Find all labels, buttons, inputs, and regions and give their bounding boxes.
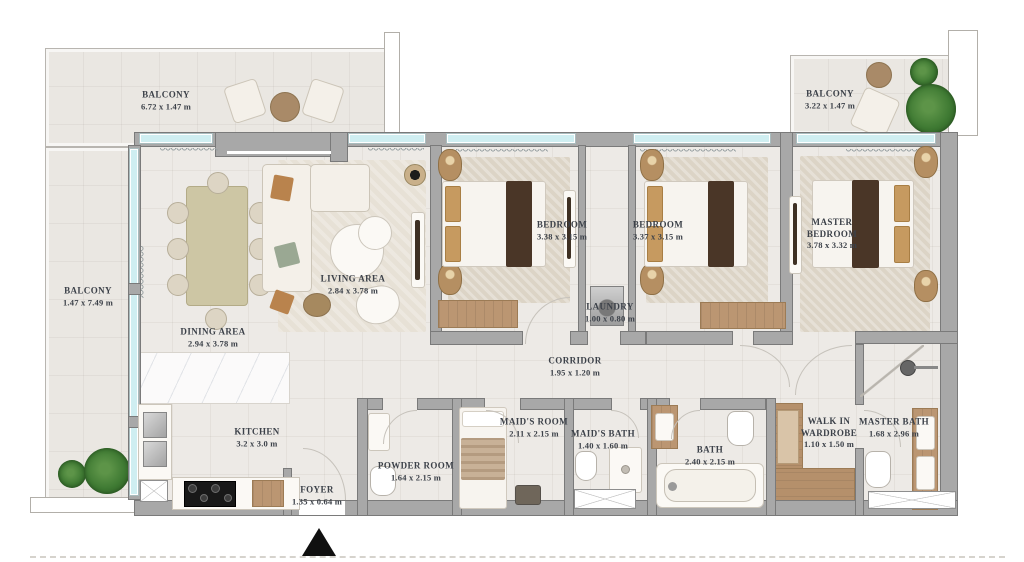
room-label-powder-room: POWDER ROOM 1.64 x 2.15 m <box>378 461 454 484</box>
wall <box>430 331 523 345</box>
wall-pier <box>620 331 646 345</box>
room-label-kitchen: KITCHEN 3.2 x 3.0 m <box>234 427 279 450</box>
curtain <box>452 149 548 155</box>
potted-plant <box>58 460 86 488</box>
bed-pillow <box>445 186 461 222</box>
room-name: MAID'S ROOM <box>500 417 568 427</box>
wall <box>766 398 776 516</box>
shower-arm <box>914 366 938 369</box>
room-label-foyer: FOYER 1.35 x 0.64 m <box>292 485 342 508</box>
dresser <box>438 300 518 328</box>
room-label-master-bath: MASTER BATH 1.68 x 2.96 m <box>859 417 929 440</box>
wall <box>753 331 793 345</box>
room-label-laundry: LAUNDRY 1.00 x 0.80 m <box>585 302 635 325</box>
wall <box>940 132 958 516</box>
room-label-bath: BATH 2.40 x 2.15 m <box>685 445 735 468</box>
nightstand <box>438 263 462 295</box>
room-name: BALCONY <box>64 286 112 296</box>
property-boundary-line <box>30 556 1005 558</box>
cooktop-burner <box>224 494 232 502</box>
wall-mullion <box>128 283 141 295</box>
stool <box>515 485 541 505</box>
room-name: POWDER ROOM <box>378 461 454 471</box>
curtain <box>141 246 147 298</box>
room-dims: 2.40 x 2.15 m <box>685 456 735 467</box>
room-dims: 1.47 x 7.49 m <box>63 297 113 308</box>
floor-plan: BALCONY 6.72 x 1.47 m BALCONY 1.47 x 7.4… <box>0 0 1024 562</box>
room-dims: 1.64 x 2.15 m <box>378 472 454 483</box>
sofa-cushion <box>270 174 294 201</box>
room-name: MASTER BEDROOM <box>807 217 857 239</box>
balcony-round-table <box>866 62 892 88</box>
room-name: FOYER <box>300 485 334 495</box>
dining-chair <box>167 238 189 260</box>
nightstand <box>640 263 664 295</box>
window <box>447 134 575 143</box>
kitchen-sink <box>143 412 167 438</box>
window <box>140 134 212 143</box>
room-name: LAUNDRY <box>586 302 633 312</box>
room-name: BALCONY <box>806 89 854 99</box>
floor-lamp <box>404 164 426 186</box>
window-balcony-door <box>797 134 935 143</box>
shower-drain <box>621 465 630 474</box>
potted-plant <box>910 58 938 86</box>
wall-pier <box>570 331 588 345</box>
room-name: MAID'S BATH <box>571 429 635 439</box>
room-name: DINING AREA <box>180 327 245 337</box>
bathtub-faucet <box>668 482 677 491</box>
potted-plant <box>84 448 130 494</box>
nightstand <box>640 149 664 181</box>
wall <box>855 331 958 344</box>
kitchen-island-counter <box>140 352 290 404</box>
nightstand <box>914 270 938 302</box>
window <box>130 149 138 495</box>
wall <box>855 448 864 516</box>
window <box>634 134 770 143</box>
bed-pillow <box>894 226 910 263</box>
nightstand <box>438 149 462 181</box>
room-dims: 3.37 x 3.15 m <box>633 231 683 242</box>
room-name: BEDROOM <box>537 220 587 230</box>
room-dims: 3.38 x 3.15 m <box>537 231 587 242</box>
room-dims: 1.00 x 0.80 m <box>585 313 635 324</box>
bed-pillow <box>647 186 663 222</box>
toilet <box>865 451 891 488</box>
room-dims: 3.2 x 3.0 m <box>234 438 279 449</box>
window <box>349 134 425 143</box>
room-label-walk-in-wardrobe: WALK IN WARDROBE 1.10 x 1.50 m <box>796 416 862 450</box>
room-label-living: LIVING AREA 2.84 x 3.78 m <box>321 274 386 297</box>
cutting-board <box>252 480 284 507</box>
room-dims: 2.94 x 3.78 m <box>180 338 245 349</box>
bed-runner <box>506 181 532 267</box>
bench-decor <box>793 203 797 265</box>
curtain <box>160 148 218 154</box>
sofa-chaise <box>310 164 370 212</box>
dining-chair <box>167 274 189 296</box>
potted-plant <box>906 84 956 134</box>
room-name: MASTER BATH <box>859 417 929 427</box>
tv-unit <box>227 151 331 154</box>
bed-runner <box>708 181 734 267</box>
room-name: BATH <box>697 445 723 455</box>
cooktop-burner <box>188 484 197 493</box>
room-dims: 1.40 x 1.60 m <box>571 440 635 451</box>
bed-pillow <box>445 226 461 262</box>
dining-chair <box>167 202 189 224</box>
nightstand <box>914 146 938 178</box>
room-dims: 1.35 x 0.64 m <box>292 496 342 507</box>
room-dims: 1.10 x 1.50 m <box>796 439 862 450</box>
cooktop-burner <box>200 494 208 502</box>
room-dims: 3.78 x 3.32 m <box>800 240 864 251</box>
room-dims: 1.68 x 2.96 m <box>859 428 929 439</box>
room-name: LIVING AREA <box>321 274 386 284</box>
toilet <box>575 451 597 481</box>
room-label-corridor: CORRIDOR 1.95 x 1.20 m <box>548 356 601 379</box>
bed-pillow <box>894 185 910 222</box>
room-label-master-bedroom: MASTER BEDROOM 3.78 x 3.32 m <box>800 217 864 251</box>
entry-marker-icon <box>302 528 336 556</box>
maid-bed-blanket <box>461 438 505 480</box>
room-label-bedroom-1: BEDROOM 3.38 x 3.15 m <box>537 220 587 243</box>
room-label-balcony-top: BALCONY 6.72 x 1.47 m <box>141 90 191 113</box>
room-dims: 6.72 x 1.47 m <box>141 101 191 112</box>
dining-chair <box>207 172 229 194</box>
balcony-left-floor <box>45 147 136 504</box>
console-decor <box>415 220 420 280</box>
room-name: KITCHEN <box>234 427 279 437</box>
wall <box>357 398 368 516</box>
room-label-balcony-right: BALCONY 3.22 x 1.47 m <box>805 89 855 112</box>
pouf <box>303 293 331 317</box>
room-dims: 3.22 x 1.47 m <box>805 100 855 111</box>
room-label-maids-room: MAID'S ROOM 2.11 x 2.15 m <box>500 417 568 440</box>
room-name: CORRIDOR <box>548 356 601 366</box>
wall <box>646 331 733 345</box>
cooktop-burner <box>211 484 220 493</box>
structure-column <box>384 32 400 144</box>
coffee-table <box>358 216 392 250</box>
room-dims: 2.84 x 3.78 m <box>321 285 386 296</box>
room-dims: 2.11 x 2.15 m <box>500 428 568 439</box>
wall-tv-block <box>330 132 348 162</box>
toilet <box>727 411 754 446</box>
room-label-dining: DINING AREA 2.94 x 3.78 m <box>180 327 245 350</box>
room-dims: 1.95 x 1.20 m <box>548 367 601 378</box>
bathtub-basin <box>664 469 756 502</box>
shaft-duct <box>868 491 956 509</box>
dining-table <box>186 186 248 306</box>
kitchen-sink <box>143 441 167 467</box>
room-name: BALCONY <box>142 90 190 100</box>
wall <box>700 398 766 410</box>
bathroom-sink <box>916 456 935 490</box>
room-label-bedroom-2: BEDROOM 3.37 x 3.15 m <box>633 220 683 243</box>
shaft-duct <box>574 489 636 509</box>
curtain <box>368 148 424 154</box>
dresser <box>700 302 786 329</box>
room-name: BEDROOM <box>633 220 683 230</box>
room-name: WALK IN WARDROBE <box>801 416 857 438</box>
balcony-round-table <box>270 92 300 122</box>
shaft-duct <box>140 480 168 502</box>
room-label-balcony-left: BALCONY 1.47 x 7.49 m <box>63 286 113 309</box>
balcony-railing <box>30 497 136 513</box>
room-label-maids-bath: MAID'S BATH 1.40 x 1.60 m <box>571 429 635 452</box>
